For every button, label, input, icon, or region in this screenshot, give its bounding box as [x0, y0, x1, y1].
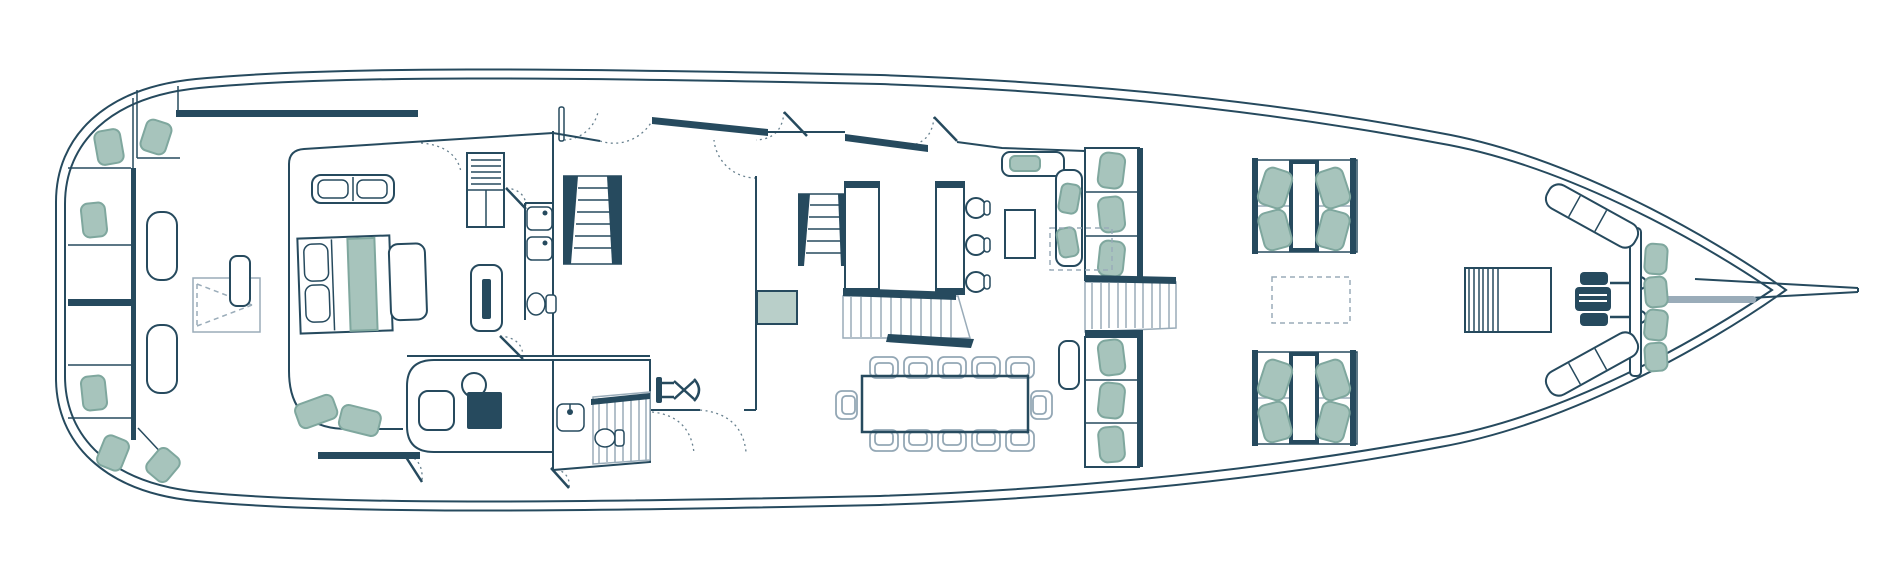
seat-cushion: [1056, 226, 1080, 258]
dining-chair: [836, 391, 857, 419]
nightstand: [230, 256, 250, 306]
bar-stool: [966, 272, 990, 292]
sink: [527, 207, 552, 230]
side-table: [1005, 210, 1035, 258]
seating-cluster-b: [1252, 350, 1357, 446]
galley-counter: [936, 182, 964, 294]
aft-lounger: [147, 212, 177, 280]
bar-stool: [966, 235, 990, 255]
dining-chair: [1031, 391, 1052, 419]
pillow: [304, 244, 329, 282]
toilet: [527, 293, 556, 315]
seat-bank-upper: [1085, 148, 1143, 280]
seat-cushion: [93, 128, 125, 166]
yacht-floor-plan: [0, 0, 1900, 580]
daybed: [1059, 341, 1079, 389]
office-desk: [467, 392, 502, 429]
aft-side-staircase: [591, 392, 650, 464]
aft-lounger: [147, 325, 177, 393]
cluster-table: [1291, 162, 1317, 250]
seat-cushion: [1097, 339, 1126, 377]
tv-cabinet: [471, 265, 502, 331]
gangway-slats: [1085, 275, 1176, 337]
master-bed: [297, 234, 427, 333]
seat-cushion: [1058, 183, 1082, 215]
wardrobe: [467, 153, 504, 227]
sink: [557, 404, 584, 431]
seat-cushion: [1097, 152, 1126, 190]
bulkhead-top: [176, 110, 418, 117]
sink: [527, 237, 552, 260]
office-seat: [419, 391, 454, 430]
seat-cushion: [80, 375, 107, 411]
headboard-bench: [312, 175, 394, 203]
bow-spine: [1654, 296, 1756, 303]
seat-cushion: [1643, 309, 1668, 341]
deck-box: [1465, 268, 1551, 332]
landing-step: [757, 291, 797, 324]
seat-cushion: [1644, 276, 1669, 308]
pillow: [305, 285, 330, 323]
deck-plan-canvas: [0, 0, 1900, 580]
seat-cushion: [1644, 342, 1668, 371]
seating-cluster-a: [1252, 158, 1357, 254]
seat-cushion: [1098, 426, 1126, 463]
bed-runner: [347, 238, 377, 331]
seat-cushion: [1097, 382, 1126, 419]
seat-cushion: [80, 202, 107, 238]
seat-cushion: [1097, 196, 1126, 233]
galley-counter: [845, 182, 879, 294]
cluster-table: [1291, 354, 1317, 442]
toilet: [595, 429, 624, 447]
seat-cushion: [1010, 156, 1040, 171]
footboard-bench: [389, 243, 428, 320]
seat-cushion: [1644, 243, 1668, 274]
door-leaf: [559, 107, 564, 141]
bar-stool: [966, 198, 990, 218]
